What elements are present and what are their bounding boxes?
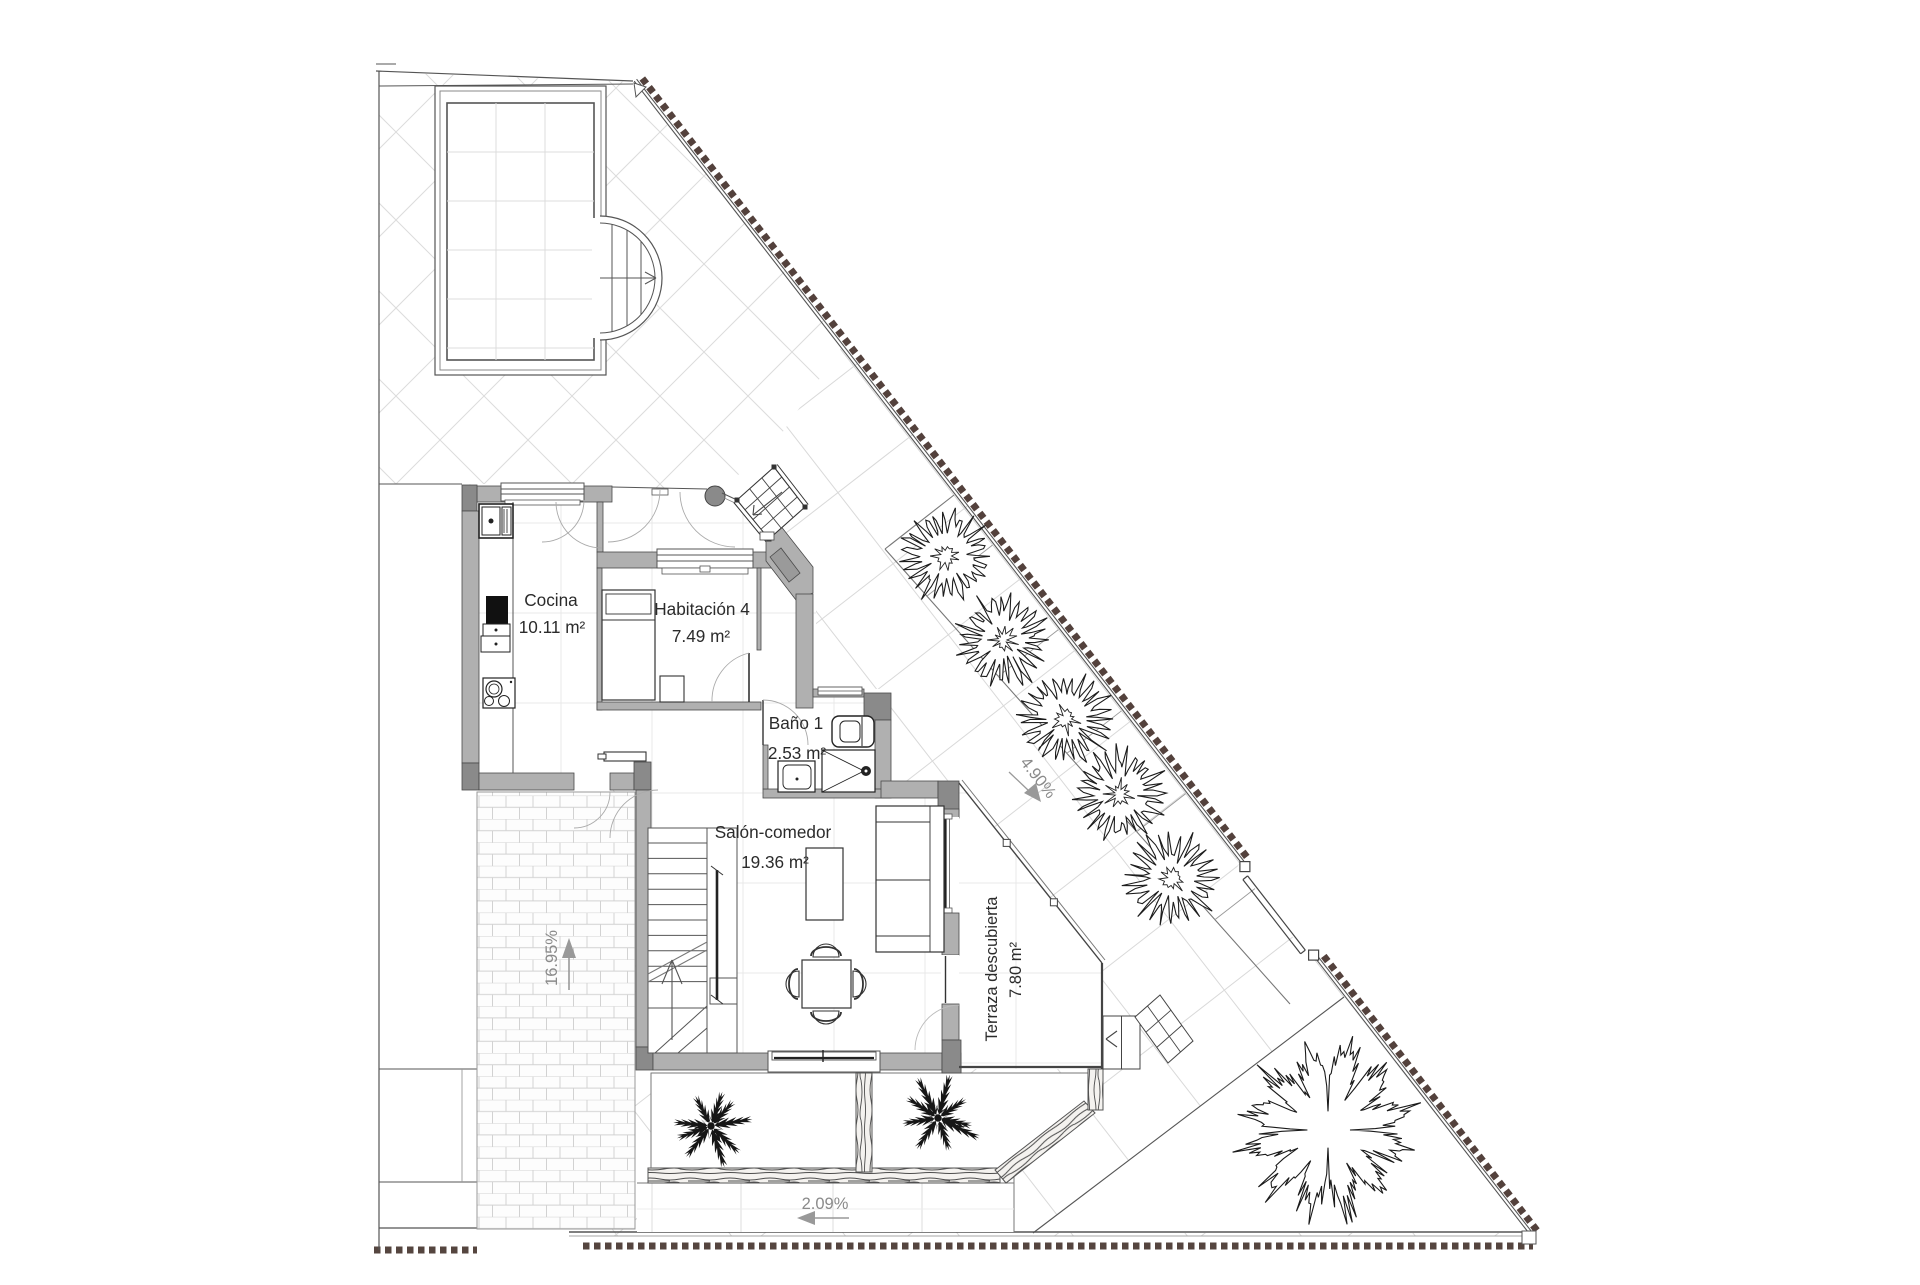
svg-text:2.09%: 2.09% bbox=[802, 1195, 849, 1213]
svg-text:Salón-comedor: Salón-comedor bbox=[715, 822, 832, 842]
svg-text:Terraza descubierta: Terraza descubierta bbox=[983, 896, 1001, 1042]
svg-text:Baño 1: Baño 1 bbox=[769, 713, 823, 733]
svg-text:2.53 m²: 2.53 m² bbox=[768, 743, 827, 763]
svg-text:19.36 m²: 19.36 m² bbox=[741, 852, 809, 872]
svg-text:16.95%: 16.95% bbox=[543, 930, 561, 986]
svg-text:Cocina: Cocina bbox=[524, 590, 578, 610]
svg-text:10.11 m²: 10.11 m² bbox=[519, 617, 586, 637]
svg-text:7.80 m²: 7.80 m² bbox=[1007, 942, 1025, 998]
svg-text:Habitación 4: Habitación 4 bbox=[654, 599, 750, 619]
svg-text:7.49 m²: 7.49 m² bbox=[672, 626, 731, 646]
